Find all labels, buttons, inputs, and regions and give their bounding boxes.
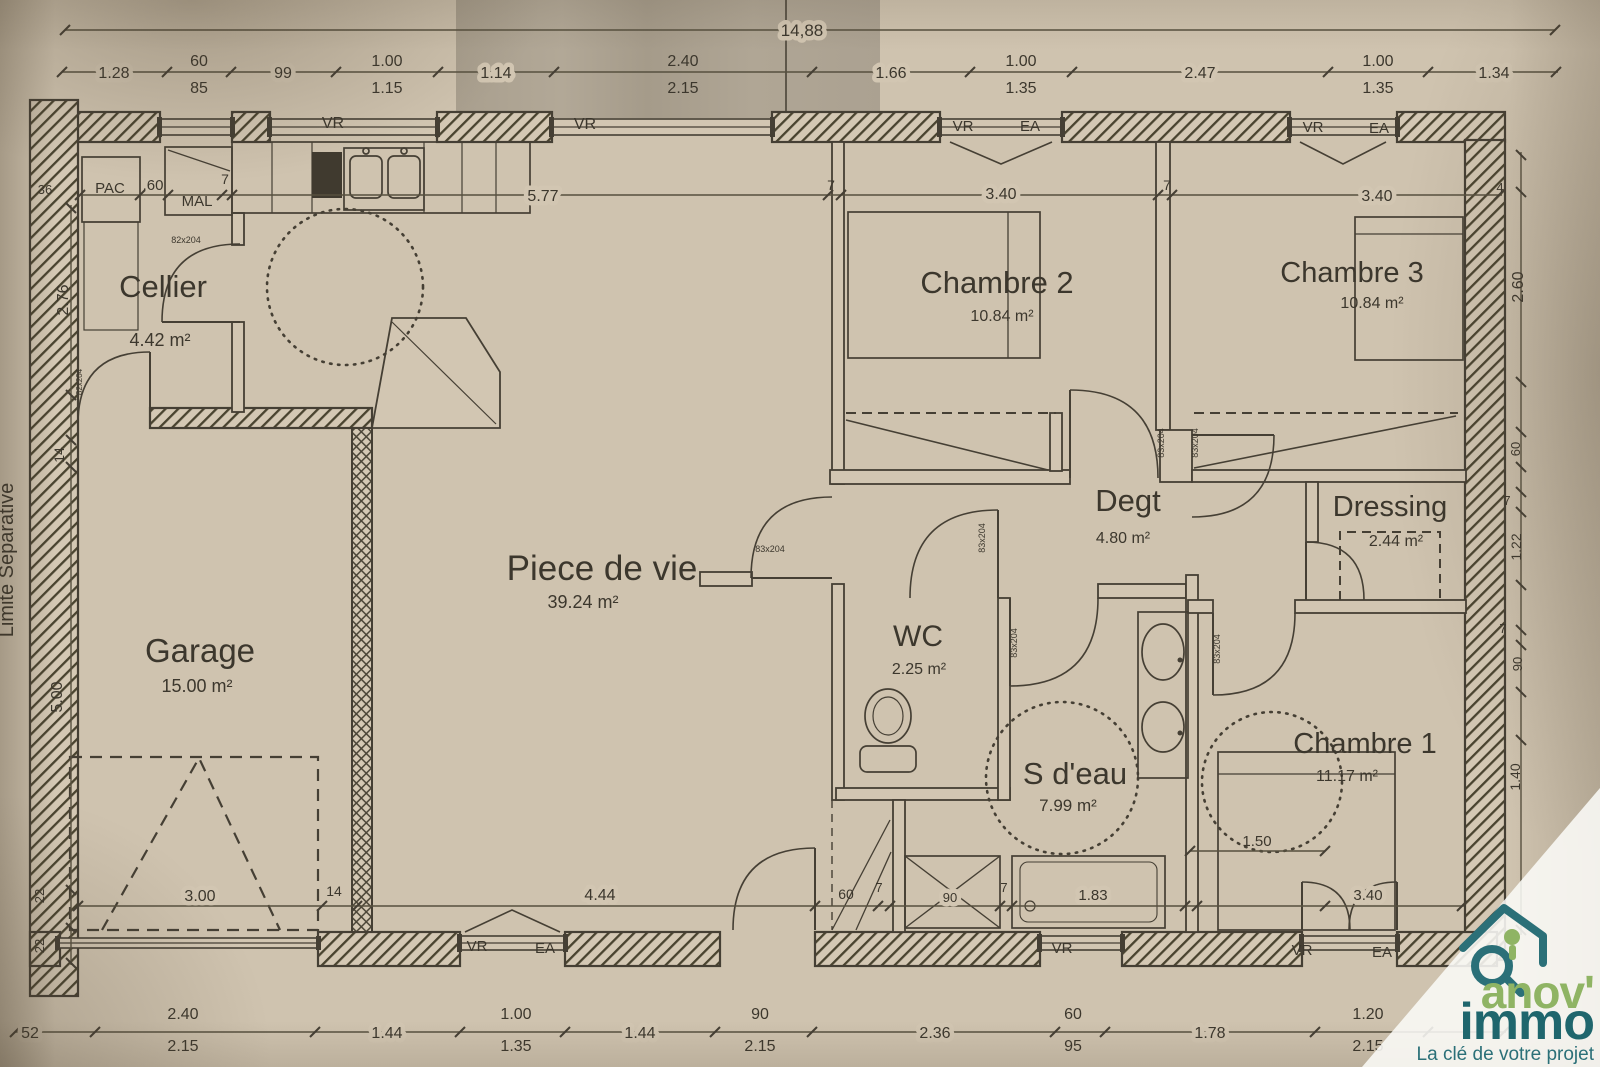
dim-l1: 36 — [38, 182, 52, 197]
dim-b4b: 1.35 — [500, 1038, 531, 1055]
dim-b5: 1.44 — [624, 1025, 655, 1042]
ea-bottom-2: EA — [1372, 944, 1392, 961]
dim-t4a: 1.00 — [371, 53, 402, 70]
cellier-area: 4.42 m² — [129, 330, 190, 350]
door-83x204-wc-corridor: 83x204 — [755, 544, 785, 554]
dim-b8b: 95 — [1064, 1038, 1082, 1055]
door-82x204-cellier: 82x204 — [171, 235, 201, 245]
dim-i11: 4.44 — [584, 887, 615, 904]
dim-t6b: 2.15 — [667, 80, 698, 97]
chambre1-area: 11.17 m² — [1316, 768, 1379, 785]
dim-r1: 2.60 — [1510, 271, 1527, 302]
dim-b9: 1.78 — [1194, 1025, 1225, 1042]
door-83x204-sdeau: 83x204 — [1009, 628, 1019, 658]
dim-i16: 1.83 — [1078, 887, 1107, 904]
chambre2-area: 10.84 m² — [970, 308, 1034, 325]
dim-t9: 2.47 — [1184, 65, 1215, 82]
dim-t5: 1.14 — [480, 65, 511, 82]
vr-bottom-2: VR — [1052, 940, 1073, 957]
door-swings — [78, 244, 1397, 930]
chambre2-name: Chambre 2 — [920, 265, 1073, 300]
dim-b8a: 60 — [1064, 1006, 1082, 1023]
dim-i13: 7 — [875, 880, 882, 895]
dim-l5: 22 — [32, 889, 47, 903]
dim-b6b: 2.15 — [744, 1038, 775, 1055]
piece-de-vie-name: Piece de vie — [507, 549, 698, 588]
dressing-area: 2.44 m² — [1369, 533, 1424, 550]
dim-t10b: 1.35 — [1362, 80, 1393, 97]
dim-l4: 5.00 — [49, 681, 66, 712]
dressing-name: Dressing — [1333, 491, 1447, 523]
dim-overall: 14,88 — [781, 21, 824, 40]
s-deau-name: S d'eau — [1023, 756, 1127, 791]
garage-name: Garage — [145, 632, 255, 669]
door-83x204-ch3: 83x204 — [1190, 428, 1200, 458]
dimension-lines — [10, 25, 1561, 1037]
dim-i1: .60 — [143, 177, 164, 194]
degt-area: 4.80 m² — [1096, 530, 1151, 547]
dim-b7: 2.36 — [919, 1025, 950, 1042]
vr-top-2: VR — [574, 116, 596, 133]
piece-de-vie-area: 39.24 m² — [547, 592, 618, 612]
chambre3-area: 10.84 m² — [1340, 295, 1404, 312]
dim-b1: 52 — [21, 1025, 39, 1042]
ea-top-1: EA — [1020, 118, 1040, 135]
dim-i15: 7 — [1000, 880, 1007, 895]
scanned-floor-plan-page: { "logo": { "brand_line1": "anov'", "bra… — [0, 0, 1600, 1067]
cellier-name: Cellier — [119, 269, 207, 304]
fixtures-and-furniture — [70, 142, 1463, 930]
ea-bottom-1: EA — [535, 940, 555, 957]
dim-b10a: 1.20 — [1352, 1006, 1383, 1023]
dim-l3: 14 — [51, 447, 67, 463]
dim-i12: 60 — [838, 886, 854, 902]
door-83x204-ch1: 83x204 — [1212, 634, 1222, 664]
dim-t8a: 1.00 — [1005, 53, 1036, 70]
dim-t8b: 1.35 — [1005, 80, 1036, 97]
dim-i14: 90 — [943, 890, 957, 905]
dim-i6: 7 — [1163, 177, 1171, 193]
chambre1-name: Chambre 1 — [1293, 728, 1436, 760]
dim-i17: 3.40 — [1353, 887, 1382, 904]
vr-bottom-1: VR — [467, 938, 488, 955]
dim-i3: 5.77 — [527, 188, 558, 205]
dim-b2a: 2.40 — [167, 1006, 198, 1023]
dim-t7: 1.66 — [875, 65, 906, 82]
pac: PAC — [95, 180, 125, 197]
garage-area: 15.00 m² — [161, 676, 232, 696]
dim-t3: 99 — [274, 65, 292, 82]
dim-l2: 2.76 — [55, 284, 72, 315]
limite-separative: Limite Separative — [0, 483, 18, 638]
wc-name: WC — [893, 620, 943, 653]
vr-top-1: VR — [322, 115, 344, 132]
vr-bottom-3: VR — [1292, 942, 1313, 959]
dim-b6a: 90 — [751, 1006, 769, 1023]
dim-b2b: 2.15 — [167, 1038, 198, 1055]
dim-r5: 7 — [1499, 621, 1506, 636]
dim-i9: 3.00 — [184, 888, 215, 905]
ea-top-2: EA — [1369, 120, 1389, 137]
degt-name: Degt — [1095, 483, 1161, 518]
dim-b3: 1.44 — [371, 1025, 402, 1042]
dim-r3: 7 — [1503, 493, 1510, 508]
vr-top-4: VR — [1303, 119, 1324, 136]
dim-b10b: 2.15 — [1352, 1038, 1383, 1055]
dim-r6: 90 — [1510, 657, 1525, 671]
dim-t2a: 60 — [190, 53, 208, 70]
floor-plan-drawing: Cellier4.42 m²Garage15.00 m²Piece de vie… — [0, 0, 1600, 1067]
dim-r4: 1.22 — [1508, 533, 1524, 560]
chambre3-name: Chambre 3 — [1280, 257, 1423, 289]
dim-t10a: 1.00 — [1362, 53, 1393, 70]
dim-i10: 14 — [326, 883, 342, 899]
dim-r2: 60 — [1508, 442, 1523, 456]
logo-brand-immo: immo — [1459, 996, 1594, 1048]
dim-t4b: 1.15 — [371, 80, 402, 97]
dim-t1: 1.28 — [98, 65, 129, 82]
dim-i18: 1.50 — [1242, 833, 1271, 850]
logo-tagline: La clé de votre projet — [1417, 1045, 1594, 1064]
text-labels: Cellier4.42 m²Garage15.00 m²Piece de vie… — [0, 21, 1527, 1055]
door-82x204-garage: 82x204 — [75, 368, 84, 395]
dim-t11: 1.34 — [1478, 65, 1509, 82]
dim-i4: 7 — [827, 177, 835, 193]
dim-t6a: 2.40 — [667, 53, 698, 70]
wc-area: 2.25 m² — [892, 661, 947, 678]
dim-i5: 3.40 — [985, 186, 1016, 203]
dim-i7: 3.40 — [1361, 188, 1392, 205]
s-deau-area: 7.99 m² — [1039, 796, 1097, 815]
door-83x204-wc: 83x204 — [977, 523, 987, 553]
dim-r7: 1.40 — [1507, 763, 1523, 790]
dim-b4a: 1.00 — [500, 1006, 531, 1023]
door-83x204-ch2: 83x204 — [1156, 428, 1166, 458]
mal: MAL — [182, 193, 213, 210]
dim-t2b: 85 — [190, 80, 208, 97]
dim-i2: 7 — [221, 171, 229, 187]
dim-i8: 4 — [1496, 180, 1503, 195]
dim-l6: 22 — [32, 939, 47, 953]
vr-top-3: VR — [953, 118, 974, 135]
